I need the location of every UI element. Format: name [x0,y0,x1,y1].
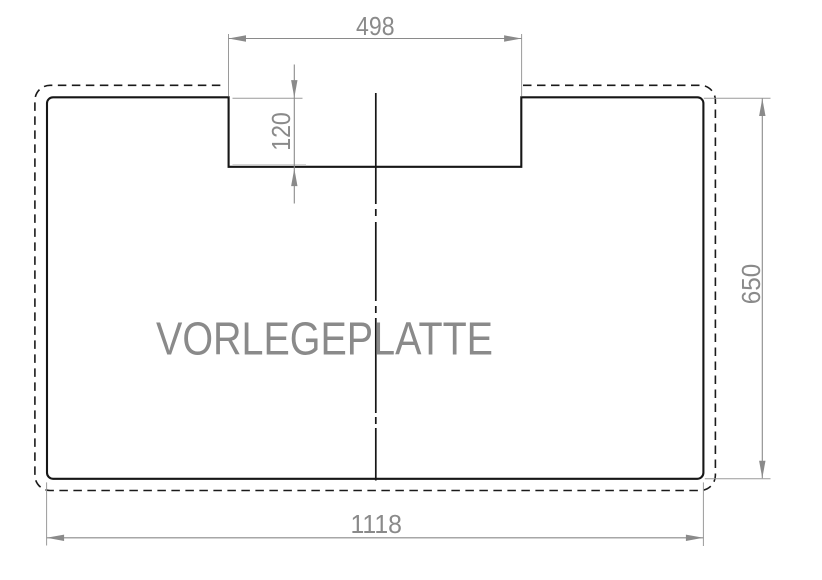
svg-text:1118: 1118 [350,509,402,539]
svg-text:120: 120 [266,112,296,151]
svg-text:650: 650 [736,264,766,305]
svg-text:VORLEGEPLATTE: VORLEGEPLATTE [156,312,493,364]
svg-text:498: 498 [356,11,395,41]
